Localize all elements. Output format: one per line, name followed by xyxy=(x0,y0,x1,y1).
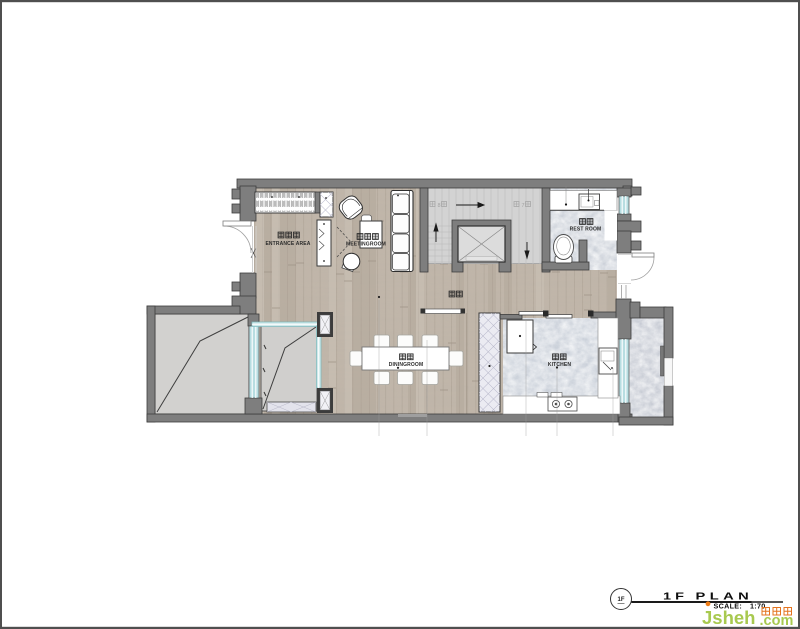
svg-text:KITCHEN: KITCHEN xyxy=(548,362,572,368)
svg-text:DININGROOM: DININGROOM xyxy=(389,362,424,368)
svg-text:ENTRANCE AREA: ENTRANCE AREA xyxy=(265,241,310,247)
svg-text:MEETINGROOM: MEETINGROOM xyxy=(346,242,386,248)
svg-text:1F: 1F xyxy=(617,597,624,603)
svg-text:1F: 1F xyxy=(663,591,688,602)
svg-text:REST ROOM: REST ROOM xyxy=(570,227,602,233)
svg-text:Jsheh: Jsheh xyxy=(702,607,755,628)
svg-text:7: 7 xyxy=(522,203,525,209)
svg-text:8: 8 xyxy=(438,203,441,209)
svg-text:PLAN: PLAN xyxy=(696,591,754,602)
